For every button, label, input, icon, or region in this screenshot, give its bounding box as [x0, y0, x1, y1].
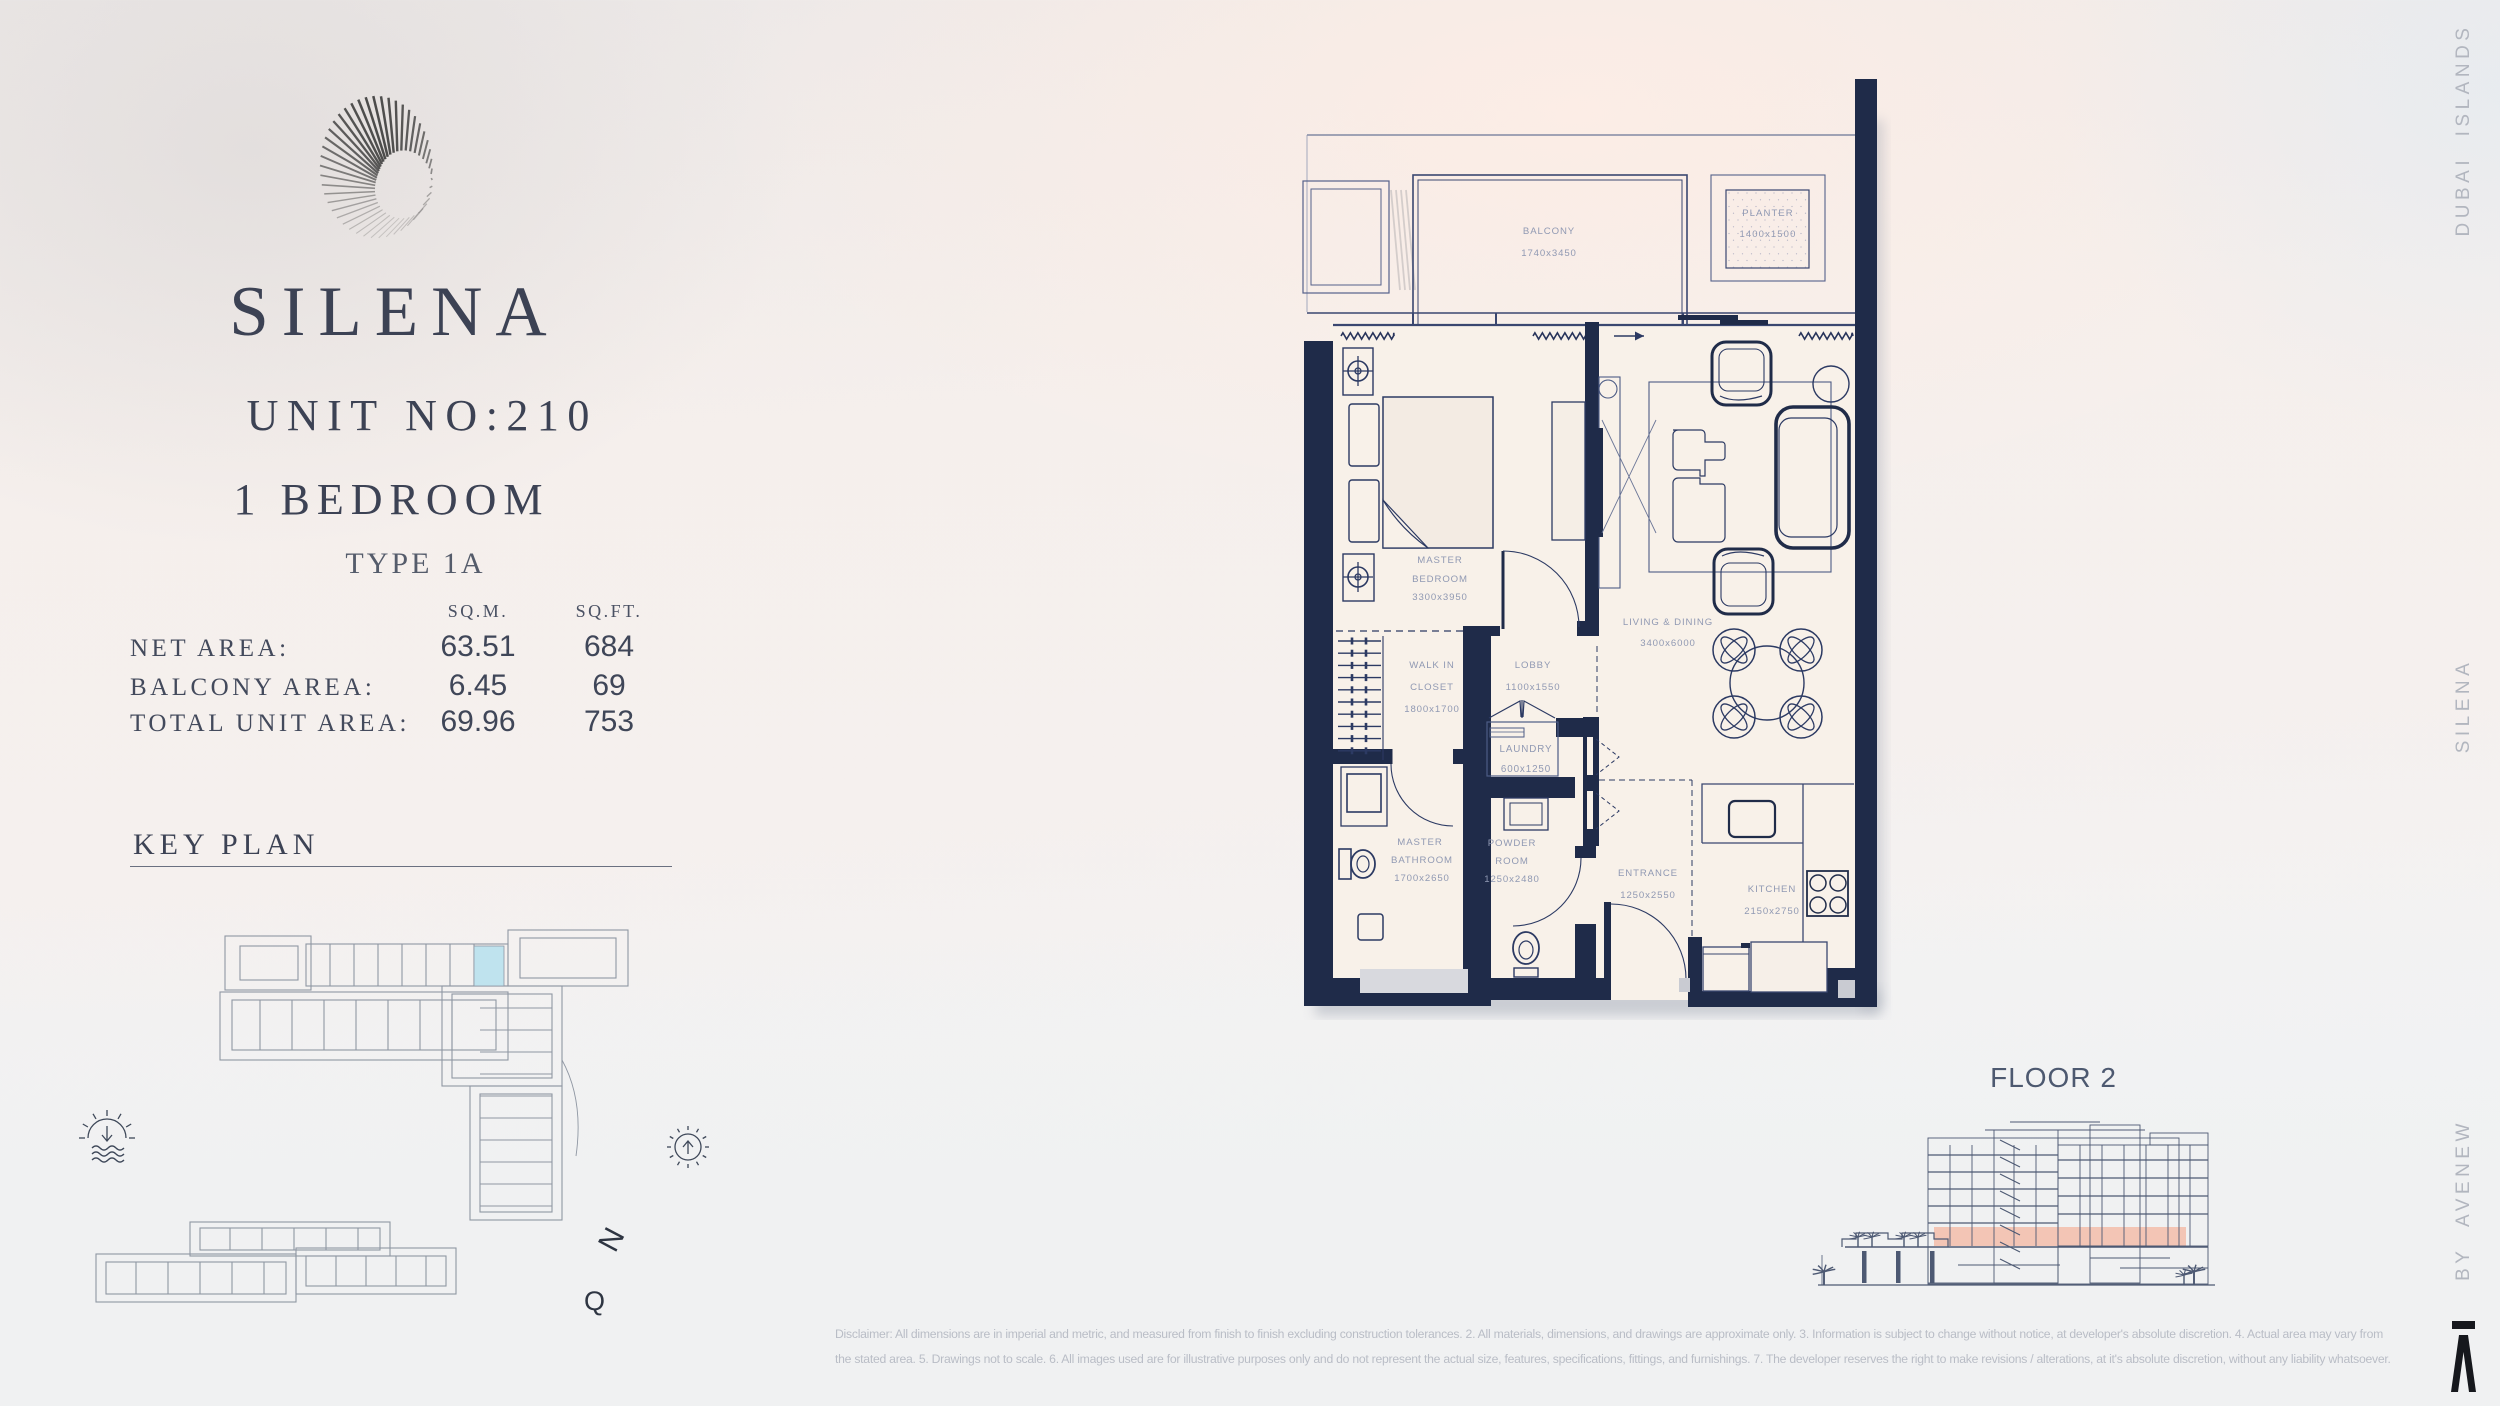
svg-text:Q: Q [584, 1286, 605, 1316]
svg-text:BEDROOM: BEDROOM [1412, 574, 1468, 585]
svg-text:3400x6000: 3400x6000 [1640, 638, 1696, 649]
svg-text:LAUNDRY: LAUNDRY [1500, 744, 1553, 755]
svg-text:600x1250: 600x1250 [1501, 764, 1551, 775]
svg-text:MASTER: MASTER [1417, 555, 1462, 566]
svg-text:MASTER: MASTER [1397, 837, 1442, 848]
svg-text:ENTRANCE: ENTRANCE [1618, 868, 1678, 879]
svg-text:1250x2550: 1250x2550 [1620, 890, 1676, 901]
svg-text:1400x1500: 1400x1500 [1740, 229, 1797, 240]
svg-text:PLANTER: PLANTER [1742, 208, 1794, 219]
svg-text:WALK IN: WALK IN [1409, 660, 1454, 671]
svg-text:1250x2480: 1250x2480 [1484, 874, 1540, 885]
svg-text:KITCHEN: KITCHEN [1748, 884, 1796, 895]
svg-text:BATHROOM: BATHROOM [1391, 855, 1453, 866]
svg-text:1100x1550: 1100x1550 [1506, 682, 1561, 693]
svg-text:2150x2750: 2150x2750 [1744, 906, 1800, 917]
svg-text:LIVING & DINING: LIVING & DINING [1623, 617, 1713, 628]
svg-text:ROOM: ROOM [1495, 856, 1528, 867]
svg-text:1740x3450: 1740x3450 [1521, 248, 1577, 259]
svg-text:POWDER: POWDER [1488, 838, 1537, 849]
svg-text:1700x2650: 1700x2650 [1394, 873, 1450, 884]
svg-text:CLOSET: CLOSET [1410, 682, 1454, 693]
svg-text:BALCONY: BALCONY [1523, 226, 1575, 237]
svg-text:N: N [592, 1222, 631, 1257]
svg-text:LOBBY: LOBBY [1515, 660, 1552, 671]
svg-text:3300x3950: 3300x3950 [1412, 592, 1468, 603]
svg-text:1800x1700: 1800x1700 [1404, 704, 1460, 715]
